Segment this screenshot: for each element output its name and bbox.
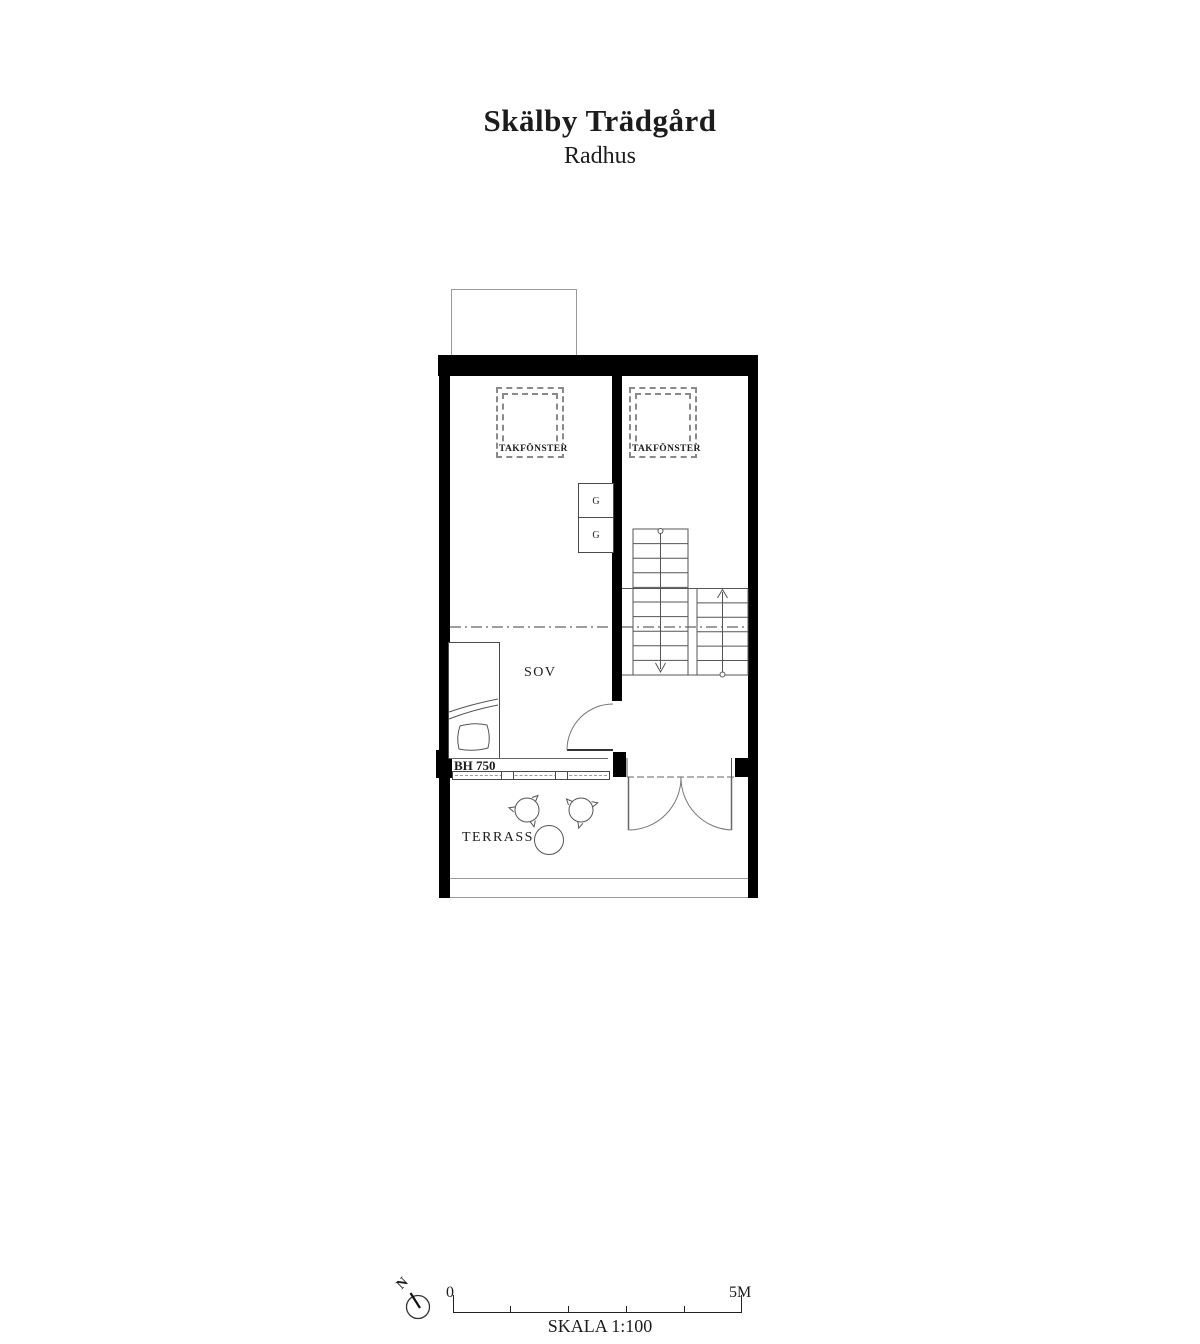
terrace-chair bbox=[509, 796, 539, 827]
bed-details bbox=[449, 699, 498, 750]
floor-plan-sheet: Skälby Trädgård Radhus TAKFÖNSTER TAKFÖN… bbox=[0, 0, 1200, 1344]
staircase bbox=[622, 529, 748, 678]
terrace-chair bbox=[567, 798, 598, 828]
bedroom-door bbox=[567, 704, 613, 750]
terrace-french-doors bbox=[627, 758, 735, 830]
pillow bbox=[458, 724, 490, 751]
terrace-table bbox=[535, 826, 564, 855]
north-arrow-icon bbox=[407, 1293, 430, 1319]
plan-vector-layer bbox=[0, 0, 1200, 1344]
